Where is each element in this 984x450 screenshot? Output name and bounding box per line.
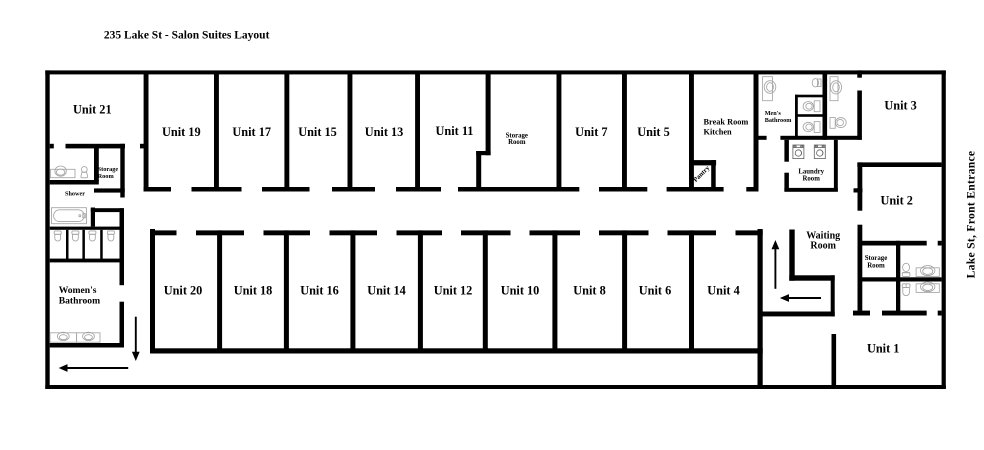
svg-text:Storage: Storage [98, 166, 119, 173]
svg-text:Unit 18: Unit 18 [234, 284, 273, 298]
svg-text:Unit 14: Unit 14 [367, 284, 406, 298]
svg-text:Shower: Shower [65, 190, 85, 197]
svg-text:Kitchen: Kitchen [704, 128, 733, 137]
svg-text:Unit 21: Unit 21 [73, 103, 112, 117]
svg-text:Unit 4: Unit 4 [707, 284, 739, 298]
svg-text:Unit 16: Unit 16 [300, 284, 339, 298]
svg-text:Unit 12: Unit 12 [434, 284, 473, 298]
svg-text:Unit 1: Unit 1 [867, 341, 899, 355]
svg-text:Lake St, Front Entrance: Lake St, Front Entrance [964, 151, 977, 279]
svg-text:Bathroom: Bathroom [59, 295, 100, 306]
svg-text:Room: Room [810, 241, 836, 252]
svg-text:Unit 20: Unit 20 [164, 284, 203, 298]
svg-text:Unit 5: Unit 5 [637, 125, 669, 139]
svg-text:Unit 7: Unit 7 [575, 125, 607, 139]
svg-text:Room: Room [508, 139, 526, 146]
svg-text:Unit 6: Unit 6 [639, 284, 671, 298]
svg-text:Unit 3: Unit 3 [884, 98, 916, 112]
svg-text:Bathroom: Bathroom [765, 117, 793, 124]
svg-text:Unit 13: Unit 13 [365, 125, 404, 139]
svg-text:Room: Room [867, 262, 885, 269]
svg-text:Men's: Men's [765, 110, 782, 117]
svg-text:Unit 8: Unit 8 [573, 284, 605, 298]
svg-text:Room: Room [803, 176, 821, 183]
svg-text:Room: Room [98, 173, 115, 180]
svg-text:Unit 15: Unit 15 [298, 125, 337, 139]
svg-text:235 Lake St - Salon Suites Lay: 235 Lake St - Salon Suites Layout [104, 29, 270, 41]
svg-text:Storage: Storage [865, 255, 888, 262]
svg-text:Unit 19: Unit 19 [162, 125, 201, 139]
svg-text:Break Room: Break Room [704, 118, 749, 127]
svg-text:Unit 2: Unit 2 [880, 194, 912, 208]
svg-text:Women's: Women's [59, 285, 97, 296]
svg-text:Laundry: Laundry [798, 169, 824, 176]
svg-text:Unit 11: Unit 11 [436, 124, 474, 138]
svg-text:Unit 17: Unit 17 [232, 125, 271, 139]
svg-text:Unit 10: Unit 10 [501, 284, 540, 298]
